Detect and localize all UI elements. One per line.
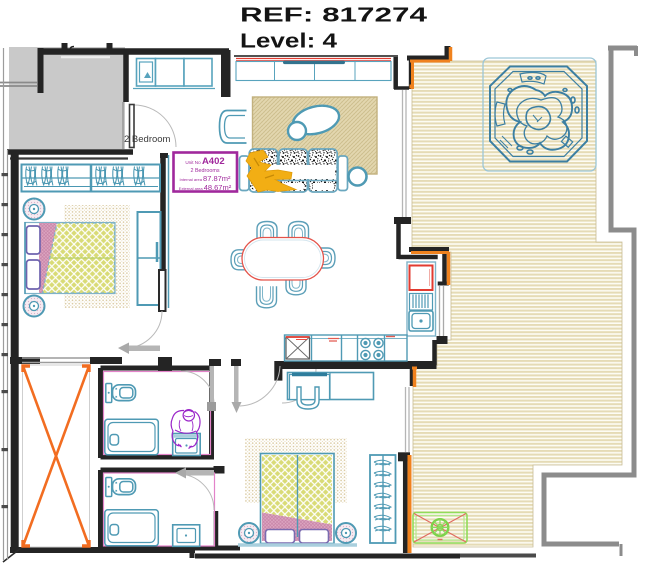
svg-text:2 Bedroom: 2 Bedroom xyxy=(124,134,171,145)
svg-text:REF: 817274: REF: 817274 xyxy=(240,5,428,27)
svg-text:Level: 4: Level: 4 xyxy=(240,31,338,53)
